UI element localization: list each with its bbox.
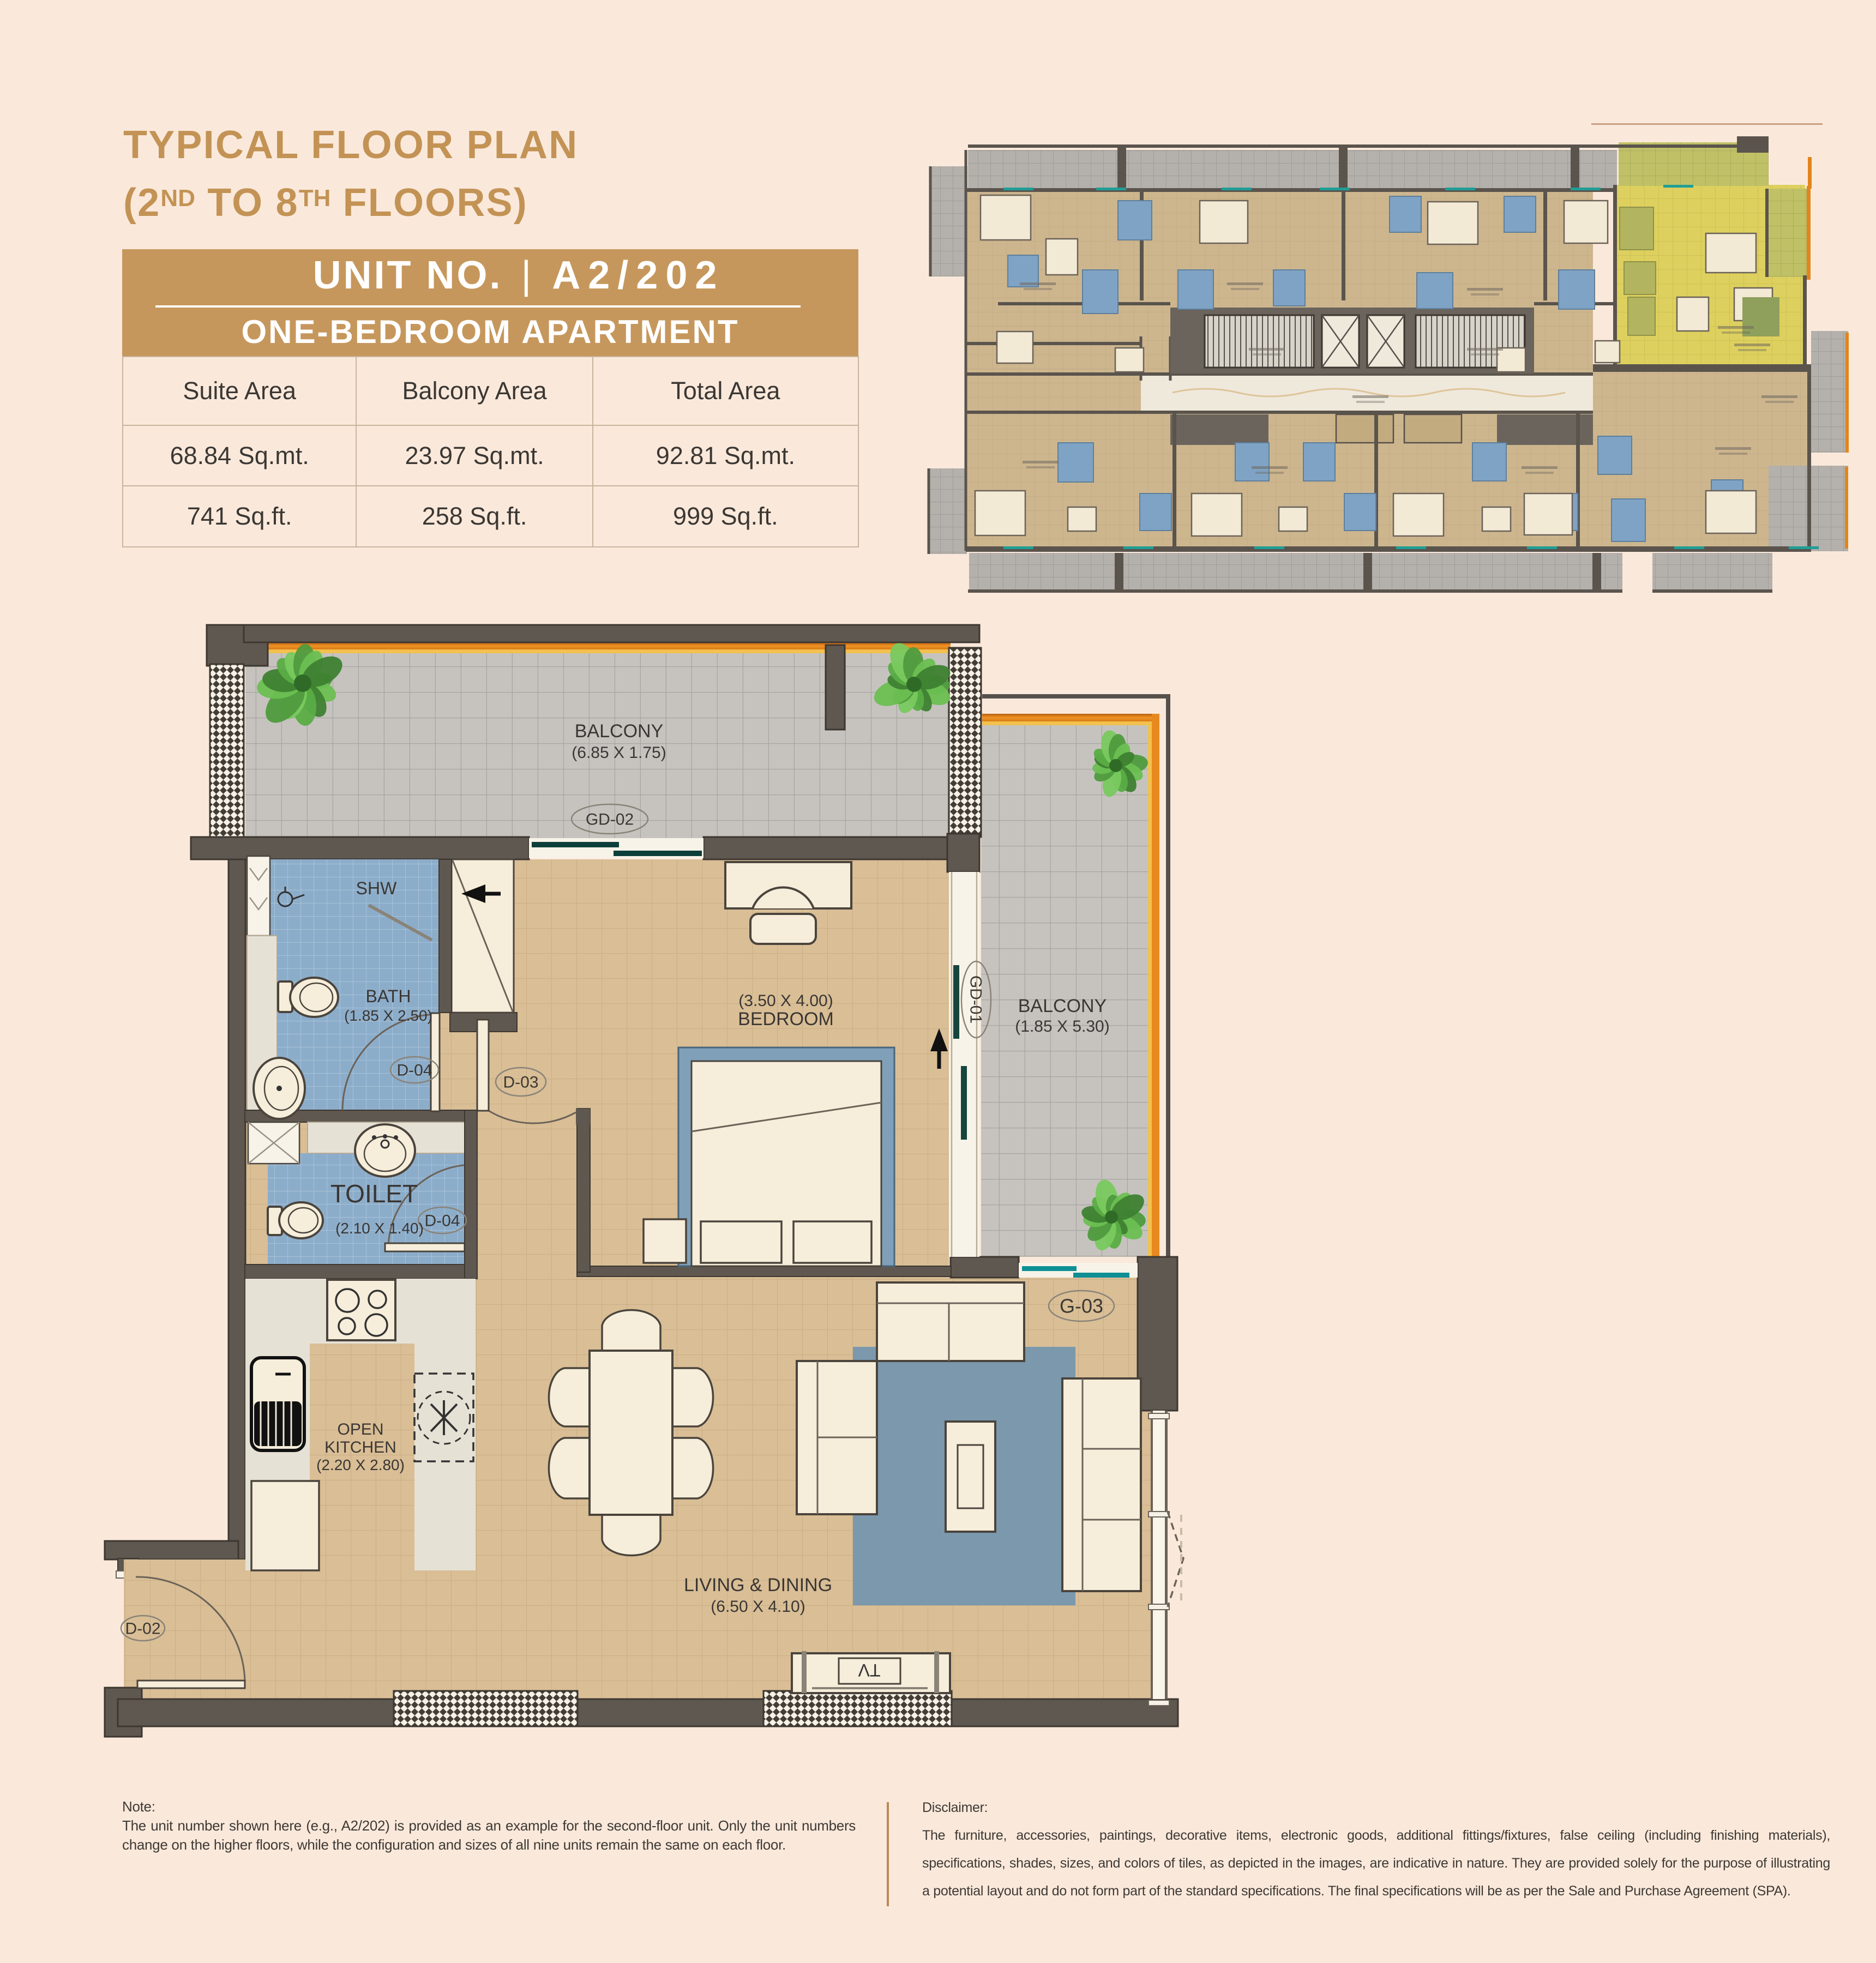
svg-text:GD-01: GD-01 (967, 976, 985, 1023)
svg-text:(6.85 X 1.75): (6.85 X 1.75) (572, 744, 666, 762)
svg-text:KITCHEN: KITCHEN (324, 1438, 396, 1456)
svg-text:OPEN: OPEN (337, 1420, 383, 1438)
svg-text:(6.50 X 4.10): (6.50 X 4.10) (711, 1598, 805, 1616)
svg-text:(2.10 X 1.40): (2.10 X 1.40) (335, 1220, 424, 1237)
svg-text:(3.50 X 4.00): (3.50 X 4.00) (738, 992, 833, 1010)
svg-text:BALCONY: BALCONY (575, 721, 664, 742)
svg-text:BALCONY: BALCONY (1018, 996, 1107, 1016)
svg-text:G-03: G-03 (1060, 1295, 1103, 1317)
svg-text:D-04: D-04 (424, 1212, 460, 1230)
svg-text:TV: TV (858, 1660, 881, 1680)
svg-text:D-02: D-02 (125, 1620, 160, 1638)
svg-text:D-04: D-04 (396, 1062, 432, 1080)
svg-text:TOILET: TOILET (330, 1179, 418, 1208)
svg-text:(2.20 X 2.80): (2.20 X 2.80) (316, 1456, 405, 1473)
svg-text:SHW: SHW (356, 878, 397, 898)
svg-text:D-03: D-03 (503, 1074, 538, 1092)
svg-text:BEDROOM: BEDROOM (738, 1009, 834, 1029)
svg-text:(1.85 X 2.50): (1.85 X 2.50) (344, 1007, 432, 1024)
svg-text:(1.85 X 5.30): (1.85 X 5.30) (1015, 1017, 1109, 1035)
svg-text:BATH: BATH (366, 986, 411, 1006)
svg-text:LIVING & DINING: LIVING & DINING (684, 1575, 832, 1595)
svg-text:GD-02: GD-02 (586, 811, 634, 829)
